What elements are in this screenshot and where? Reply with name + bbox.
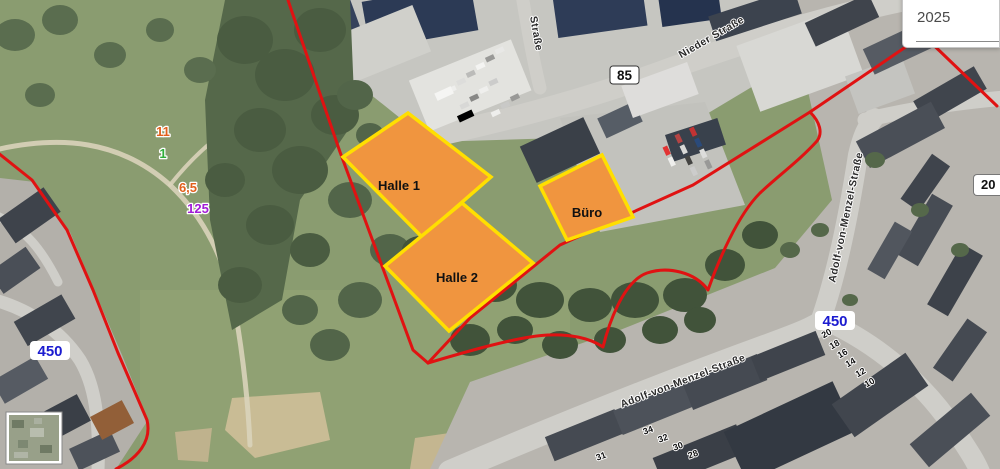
route-badge-85: 85 [610, 66, 639, 84]
parcel-label-125: 125 [187, 201, 209, 216]
svg-text:450: 450 [37, 343, 62, 360]
buero-label: Büro [572, 205, 602, 220]
svg-text:85: 85 [617, 68, 633, 83]
overview-inset-map[interactable] [6, 412, 62, 464]
year-selector-value[interactable]: 2025 [917, 9, 950, 26]
map-viewport[interactable]: Halle 1 Halle 2 Büro Nieder Straße Straß… [0, 0, 1000, 469]
parcel-label-6-5: 6,5 [179, 180, 197, 195]
edge-house-number-badge: 20 [973, 174, 1000, 196]
parcel-label-1: 1 [159, 146, 166, 161]
panel-divider [916, 41, 999, 42]
halle2-label: Halle 2 [436, 270, 478, 285]
aerial-map-canvas[interactable]: Halle 1 Halle 2 Büro Nieder Straße Straß… [0, 0, 1000, 469]
parcel-label-11: 11 [156, 124, 170, 139]
route-badge-450-left: 450 [30, 341, 70, 360]
halle1-label: Halle 1 [378, 178, 420, 193]
route-badge-450-right: 450 [815, 311, 855, 330]
year-selector-panel[interactable]: 2025 [902, 0, 1000, 48]
